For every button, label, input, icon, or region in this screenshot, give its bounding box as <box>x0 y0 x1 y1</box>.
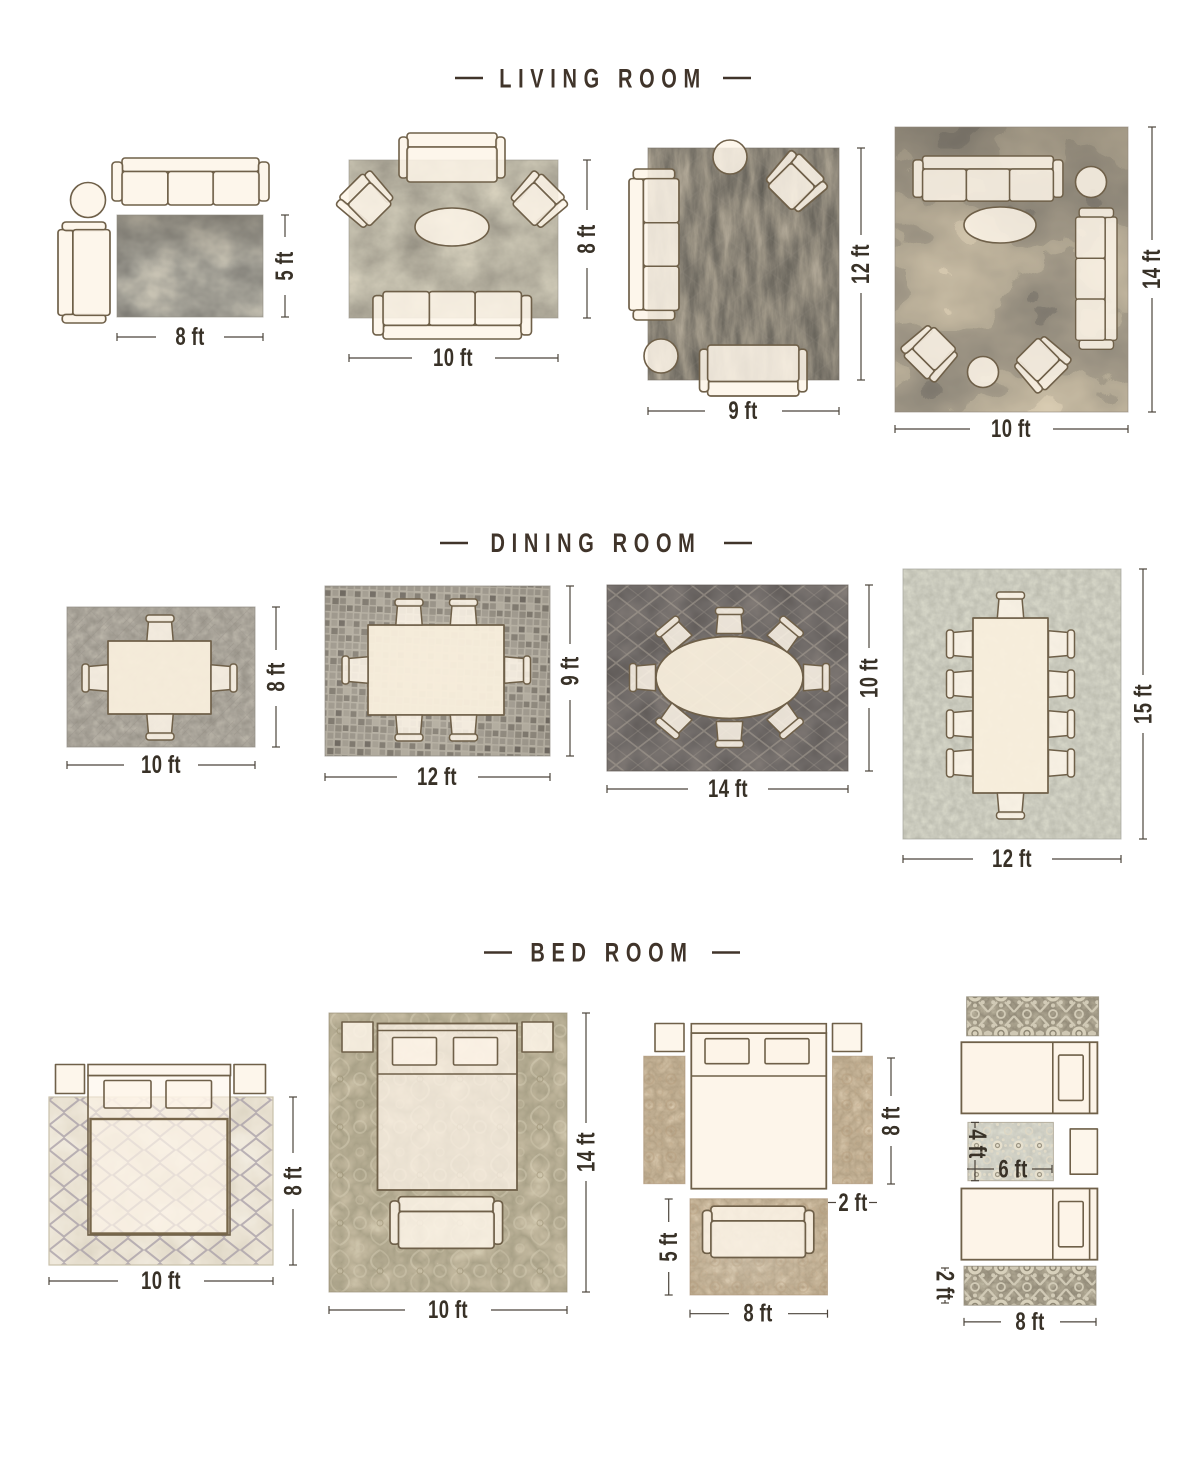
svg-text:12 ft: 12 ft <box>992 844 1032 872</box>
svg-text:2 ft: 2 ft <box>838 1188 867 1216</box>
svg-text:DINING ROOM: DINING ROOM <box>491 528 702 559</box>
svg-text:LIVING ROOM: LIVING ROOM <box>499 64 707 95</box>
svg-text:10 ft: 10 ft <box>433 343 473 371</box>
svg-text:6 ft: 6 ft <box>998 1155 1027 1183</box>
svg-text:9 ft: 9 ft <box>556 656 584 685</box>
svg-text:10 ft: 10 ft <box>855 658 883 698</box>
svg-text:15 ft: 15 ft <box>1129 684 1157 724</box>
svg-text:5 ft: 5 ft <box>654 1232 682 1261</box>
svg-text:8 ft: 8 ft <box>743 1299 772 1327</box>
svg-text:8 ft: 8 ft <box>175 322 204 350</box>
svg-text:12 ft: 12 ft <box>417 762 457 790</box>
svg-text:BED ROOM: BED ROOM <box>530 938 693 969</box>
svg-text:8 ft: 8 ft <box>279 1166 307 1195</box>
svg-text:2 ft: 2 ft <box>931 1271 959 1300</box>
svg-text:8 ft: 8 ft <box>572 224 600 253</box>
svg-text:14 ft: 14 ft <box>708 774 748 802</box>
svg-text:8 ft: 8 ft <box>877 1106 905 1135</box>
svg-text:5 ft: 5 ft <box>270 251 298 280</box>
svg-text:10 ft: 10 ft <box>428 1295 468 1323</box>
svg-text:4 ft: 4 ft <box>963 1129 991 1158</box>
svg-text:12 ft: 12 ft <box>846 244 874 284</box>
svg-text:10 ft: 10 ft <box>141 1266 181 1294</box>
svg-text:8 ft: 8 ft <box>262 662 290 691</box>
svg-text:8 ft: 8 ft <box>1015 1307 1044 1335</box>
svg-text:14 ft: 14 ft <box>1137 249 1165 289</box>
svg-text:14 ft: 14 ft <box>572 1132 600 1172</box>
svg-text:10 ft: 10 ft <box>141 750 181 778</box>
svg-text:9 ft: 9 ft <box>728 396 757 424</box>
svg-text:10 ft: 10 ft <box>991 414 1031 442</box>
